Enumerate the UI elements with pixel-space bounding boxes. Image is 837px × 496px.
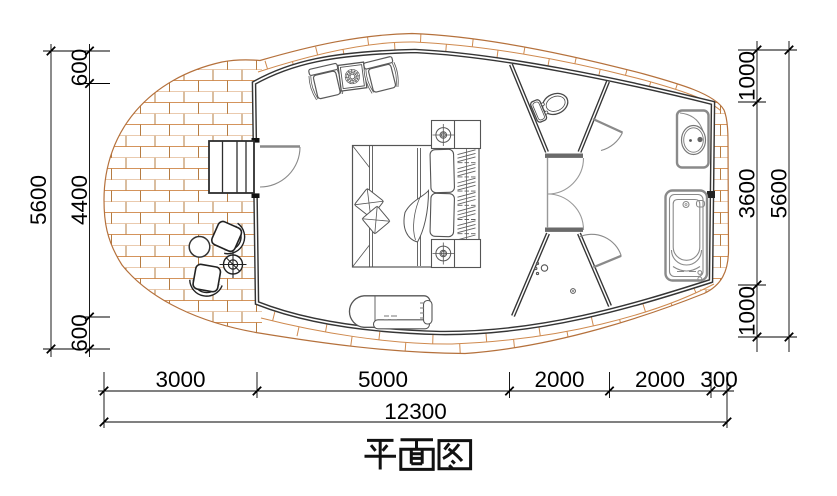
svg-text:1000: 1000 bbox=[735, 286, 760, 336]
svg-text:3600: 3600 bbox=[735, 168, 760, 218]
svg-text:12300: 12300 bbox=[384, 399, 447, 424]
svg-text:5000: 5000 bbox=[358, 367, 408, 392]
svg-text:2000: 2000 bbox=[635, 367, 685, 392]
svg-text:600: 600 bbox=[67, 49, 92, 87]
svg-text:600: 600 bbox=[67, 314, 92, 352]
svg-text:5600: 5600 bbox=[767, 168, 792, 218]
svg-text:5600: 5600 bbox=[26, 175, 51, 225]
svg-text:1000: 1000 bbox=[735, 51, 760, 101]
svg-text:4400: 4400 bbox=[67, 175, 92, 225]
svg-text:3000: 3000 bbox=[155, 367, 205, 392]
svg-text:300: 300 bbox=[700, 367, 738, 392]
svg-text:2000: 2000 bbox=[534, 367, 584, 392]
